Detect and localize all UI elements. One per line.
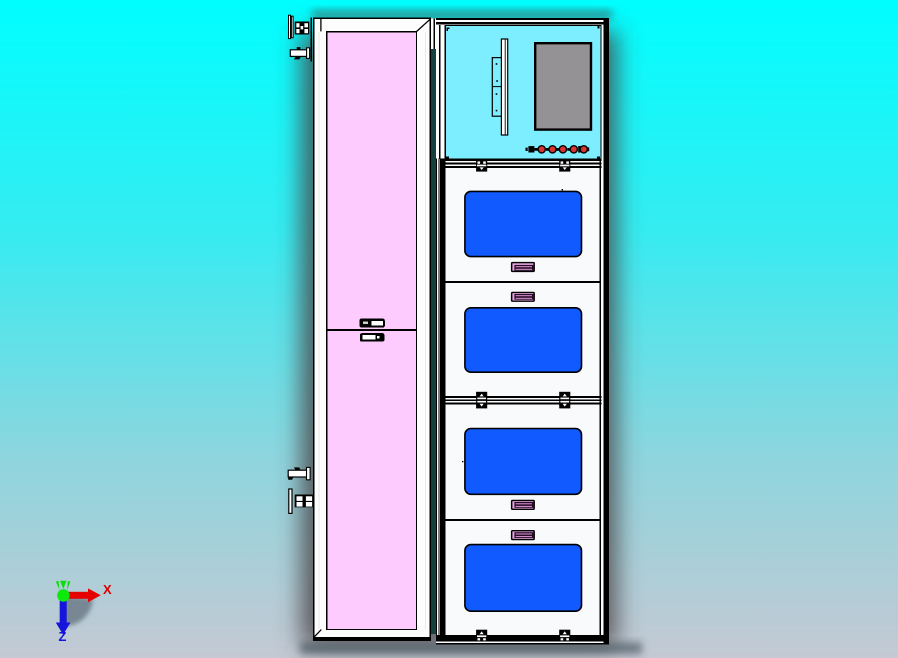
svg-text:X: X [103, 582, 112, 597]
svg-text:Z: Z [59, 629, 67, 644]
